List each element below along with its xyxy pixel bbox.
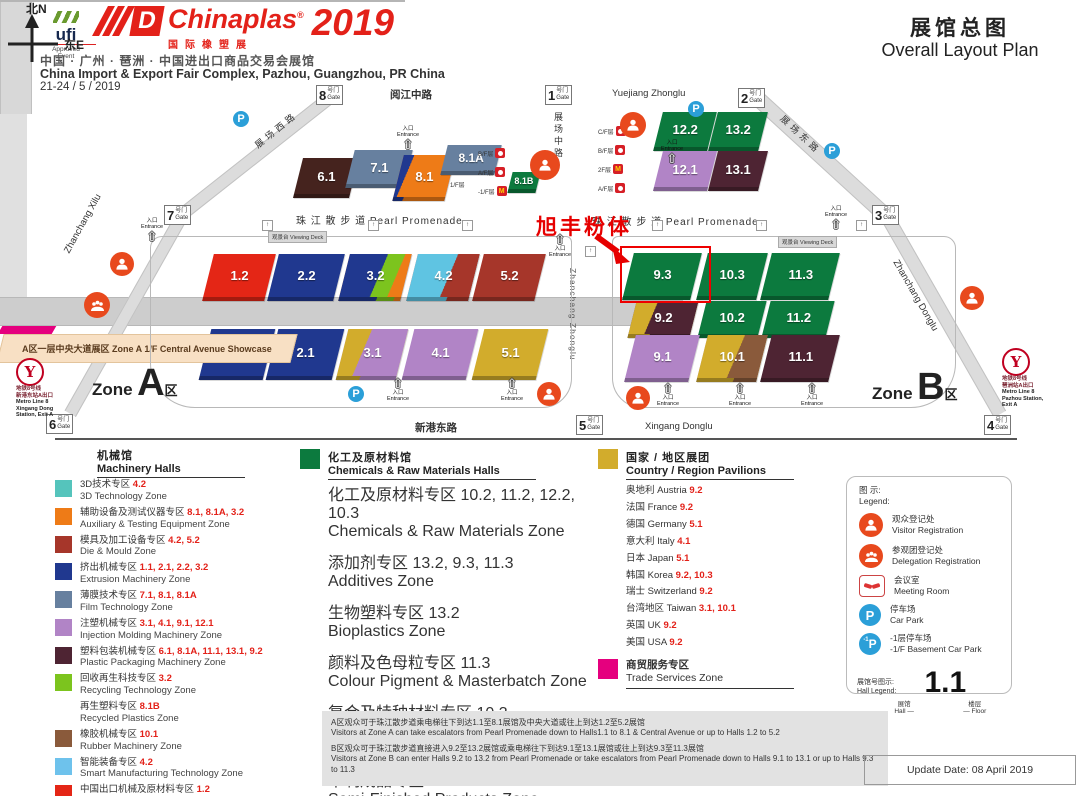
country-cn: 奥地利	[626, 485, 655, 496]
pavilion-row: 台湾地区 Taiwan 3.1, 10.1	[626, 601, 816, 618]
entrance-marker: 入口Entrance⇧	[650, 140, 694, 164]
zone-name-en: Semi-Finished Products Zone	[328, 791, 593, 796]
zone-a-label: Zone A区	[92, 362, 178, 405]
metro-icon: Y	[1002, 348, 1030, 376]
floor-label: A/F层	[598, 184, 613, 193]
note-a-en: Visitors at Zone A can take escalators f…	[331, 728, 879, 738]
entrance-arrow-icon: ⇧	[814, 219, 858, 231]
country-cn: 意大利	[626, 536, 655, 547]
zone-halls: 4.2, 5.2	[168, 535, 200, 546]
car-park-icon: P	[233, 111, 249, 127]
entrance-marker: ⇧入口Entrance	[790, 383, 834, 407]
basement-car-park-icon: -1P	[859, 633, 881, 655]
gate-number: 2	[741, 92, 748, 105]
zone-halls: 3.1, 4.1, 9.1, 12.1	[140, 618, 214, 629]
zone-name-en: Chemicals & Raw Materials Zone	[328, 523, 593, 541]
entrance-marker: ⇧入口Entrance	[490, 378, 534, 402]
country-en: Korea	[648, 570, 673, 581]
legend-panel-rows: 观众登记处Visitor Registration参观团登记处Delegatio…	[847, 513, 1011, 655]
zone-name-cn: 中国出口机械及原材料专区 1.2	[80, 784, 266, 796]
zone-color-swatch	[55, 619, 72, 636]
trade-services-swatch	[598, 659, 618, 679]
entrance-marker: 入口Entrance⇧	[386, 126, 430, 150]
hall-label: 8.1B	[515, 176, 534, 186]
country-halls: 9.2	[699, 586, 712, 597]
zone-name-cn: 生物塑料专区 13.2	[328, 599, 593, 623]
food-floor-right: A/F层	[598, 183, 627, 193]
zone-color-swatch	[55, 591, 72, 608]
entrance-label: 入口Entrance	[646, 395, 690, 408]
annotation-arrow-icon	[592, 232, 632, 266]
zone-b-letter: B	[917, 366, 944, 408]
escalator-icon: ↑	[462, 220, 473, 231]
zone-name-cn: 智能装备专区 4.2	[80, 757, 243, 769]
entrance-marker: 入口Entrance⇧	[130, 218, 174, 242]
country-cn: 英国	[626, 620, 645, 631]
promenade-label-left: 珠 江 散 步 道 Pearl Promenade	[296, 212, 463, 227]
mcdonalds-icon: M	[613, 164, 623, 174]
entrance-arrow-icon: ⇧	[650, 153, 694, 165]
floor-label: -1/F层	[478, 187, 495, 196]
zone-name-cn: 挤出机械专区 1.1, 2.1, 2.2, 3.2	[80, 562, 208, 574]
site-map: 阅江中路Yuejiang Zhonglu展场中路Zhanchang Zhongl…	[0, 0, 1080, 440]
metro-label: Station, Exit A	[16, 412, 88, 419]
zone-halls: 13.2, 9.3, 11.3	[412, 555, 513, 572]
car-park-icon: P	[348, 386, 364, 402]
entrance-label: 入口Entrance	[490, 390, 534, 403]
metro-label: Xingang Dong	[16, 406, 88, 413]
entrance-arrow-icon: ⇧	[376, 378, 420, 390]
entrance-label: 入口Entrance	[790, 395, 834, 408]
legend-row-en: Car Park	[890, 615, 924, 626]
visitor-registration-icon	[620, 112, 646, 138]
metro-label: 琶洲站A出口	[1002, 383, 1074, 390]
hall-legend-label: 展馆号图示: Hall Legend:	[857, 678, 896, 696]
zone-name-en: Recycled Plastics Zone	[80, 713, 179, 725]
chemicals-halls-title: 化工及原材料馆 Chemicals & Raw Materials Halls	[300, 449, 536, 480]
metro-label: 地铁8号线	[16, 386, 88, 393]
pavilion-row: 英国 UK 9.2	[626, 618, 816, 635]
visitor-registration-icon	[537, 382, 561, 406]
gate-suffix: 号门Gate	[175, 208, 188, 221]
gate-5: 5号门Gate	[576, 415, 603, 435]
zone-name-en: Die & Mould Zone	[80, 546, 200, 558]
overall-layout-plan-page: ufi ApprovedEvent D Chinaplas® 国际橡塑展 201…	[0, 0, 1080, 796]
zone-halls: 11.3	[460, 655, 490, 672]
country-cn: 德国	[626, 519, 645, 530]
hall-legend-hall-label: 展馆Hall —	[894, 698, 914, 715]
zone-name-en: Rubber Machinery Zone	[80, 741, 182, 753]
zone-name-cn: 辅助设备及测试仪器专区 8.1, 8.1A, 3.2	[80, 507, 244, 519]
zone-name-cn: 模具及加工设备专区 4.2, 5.2	[80, 535, 200, 547]
gate-suffix: 号门Gate	[556, 88, 569, 101]
machinery-legend-item: 挤出机械专区 1.1, 2.1, 2.2, 3.2Extrusion Machi…	[55, 562, 305, 586]
gate-suffix: 号门Gate	[57, 417, 70, 430]
zone-cn: 区	[165, 383, 178, 398]
compass-east-label: 东E	[64, 36, 84, 53]
entrance-marker: ⇧入口Entrance	[718, 383, 762, 407]
food-floor-left: A/F层	[478, 167, 507, 177]
entrance-arrow-icon: ⇧	[646, 383, 690, 395]
floor-1f-label: 1/F层	[450, 180, 465, 189]
zone-halls: 8.1B	[140, 701, 160, 712]
gate-3: 3号门Gate	[872, 205, 899, 225]
zone-color-swatch	[55, 536, 72, 553]
entrance-arrow-icon: ⇧	[718, 383, 762, 395]
hall-label: 12.2	[673, 122, 698, 137]
visitor-registration-icon	[530, 150, 560, 180]
chemicals-legend-item: 添加剂专区 13.2, 9.3, 11.3Additives Zone	[328, 549, 593, 591]
gate-number: 5	[579, 419, 586, 432]
delegation-registration-icon	[84, 292, 110, 318]
country-halls: 9.2	[689, 485, 702, 496]
legend-row-cn: 会议室	[894, 575, 949, 586]
viewing-deck-left: 观景台 Viewing Deck	[268, 231, 327, 243]
gate-4: 4号门Gate	[984, 415, 1011, 435]
machinery-legend-list: 3D技术专区 4.23D Technology Zone辅助设备及测试仪器专区 …	[55, 479, 305, 796]
zone-name-en: Auxiliary & Testing Equipment Zone	[80, 519, 244, 531]
escalator-icon: ↑	[756, 220, 767, 231]
compass-icon	[0, 14, 70, 64]
zone-color-swatch	[55, 758, 72, 775]
gate-suffix: 号门Gate	[587, 418, 600, 431]
machinery-legend-item: 再生塑料专区 8.1BRecycled Plastics Zone	[55, 701, 305, 725]
trade-strip	[0, 326, 56, 334]
metro-left: Y地铁8号线新港东站A出口Metro Line 8Xingang DongSta…	[16, 358, 88, 419]
legend-row-en: Delegation Registration	[892, 556, 980, 567]
road-label-xingang-cn: 新港东路	[415, 420, 457, 435]
visitor-registration-icon	[859, 513, 883, 537]
entrance-marker: 入口Entrance⇧	[814, 206, 858, 230]
metro-label: Metro Line 8	[16, 399, 88, 406]
hall-legend: 展馆号图示: Hall Legend: 1.1 展馆Hall — 楼层— Flo…	[857, 668, 1011, 715]
machinery-legend-item: 塑料包装机械专区 6.1, 8.1A, 11.1, 13.1, 9.2Plast…	[55, 646, 305, 670]
pavilion-row: 韩国 Korea 9.2, 10.3	[626, 568, 816, 585]
chemicals-legend-item: 颜料及色母粒专区 11.3Colour Pigment & Masterbatc…	[328, 649, 593, 691]
zone-color-swatch	[55, 508, 72, 525]
country-en: USA	[648, 637, 667, 648]
pavilion-row: 奥地利 Austria 9.2	[626, 483, 816, 500]
country-cn: 韩国	[626, 570, 645, 581]
country-cn: 法国	[626, 502, 645, 513]
viewing-deck-right: 观景台 Viewing Deck	[778, 236, 837, 248]
legend-row-cn: 参观团登记处	[892, 545, 980, 556]
machinery-legend-item: 3D技术专区 4.23D Technology Zone	[55, 479, 305, 503]
zone-name-en: Recycling Technology Zone	[80, 685, 196, 697]
zone-cn: 区	[945, 387, 958, 402]
hall-label: 13.2	[726, 122, 751, 137]
floor-label: B/F层	[598, 146, 613, 155]
gate-8: 8号门Gate	[316, 85, 343, 105]
floor-label: B/F层	[478, 149, 493, 158]
zone-name-en: Smart Manufacturing Technology Zone	[80, 768, 243, 780]
note-b-cn: B区观众可于珠江散步道直接进入9.2至13.2展馆或乘电梯往下到达9.1至13.…	[331, 744, 879, 754]
gate-suffix: 号门Gate	[327, 88, 340, 101]
zone-name-en: Injection Molding Machinery Zone	[80, 630, 222, 642]
entrance-label: 入口Entrance	[718, 395, 762, 408]
country-en: Austria	[657, 485, 687, 496]
zone-halls: 10.1	[140, 729, 159, 740]
escalator-icon: ↑	[652, 220, 663, 231]
pavilion-row: 德国 Germany 5.1	[626, 517, 816, 534]
legend-panel-row: 会议室Meeting Room	[859, 575, 1011, 597]
food-floor-left: -1/F层M	[478, 186, 509, 196]
hall-label: 13.1	[726, 162, 751, 177]
pavilion-row: 瑞士 Switzerland 9.2	[626, 584, 816, 601]
zone-name-en: Film Technology Zone	[80, 602, 197, 614]
country-halls: 9.2	[680, 502, 693, 513]
country-halls: 9.2	[669, 637, 682, 648]
country-en: Italy	[657, 536, 674, 547]
legend-panel-row: P停车场Car Park	[859, 604, 1011, 626]
country-en: UK	[648, 620, 661, 631]
legend-row-en: Visitor Registration	[892, 525, 963, 536]
metro-label: Pazhou Station,	[1002, 396, 1074, 403]
machinery-legend-item: 辅助设备及测试仪器专区 8.1, 8.1A, 3.2Auxiliary & Te…	[55, 507, 305, 531]
hall-legend-sample: 1.1 展馆Hall — 楼层— Floor	[904, 668, 986, 715]
gate-number: 6	[49, 418, 56, 431]
zone-name-cn: 3D技术专区 4.2	[80, 479, 167, 491]
zone-name-cn: 注塑机械专区 3.1, 4.1, 9.1, 12.1	[80, 618, 222, 630]
road-label-yuejiang-en: Yuejiang Zhonglu	[612, 88, 685, 99]
machinery-legend-item: 注塑机械专区 3.1, 4.1, 9.1, 12.1Injection Mold…	[55, 618, 305, 642]
zone-halls: 13.2	[428, 605, 459, 622]
meeting-room-icon	[859, 575, 885, 597]
hall-legend-floor-label: 楼层— Floor	[963, 698, 986, 715]
metro-label: 新港东站A出口	[16, 393, 88, 400]
machinery-legend-item: 薄膜技术专区 7.1, 8.1, 8.1AFilm Technology Zon…	[55, 590, 305, 614]
delegation-registration-icon	[859, 544, 883, 568]
entrance-label: 入口Entrance	[376, 390, 420, 403]
zone-color-swatch	[55, 563, 72, 580]
gate-number: 1	[548, 89, 555, 102]
hall-13-1: 13.1	[708, 151, 768, 191]
legend-panel: 图 示: Legend: 观众登记处Visitor Registration参观…	[846, 476, 1012, 694]
zone-a-letter: A	[137, 362, 164, 404]
zone-name-cn: 薄膜技术专区 7.1, 8.1, 8.1A	[80, 590, 197, 602]
metro-right: Y地铁8号线琶洲站A出口Metro Line 8Pazhou Station,E…	[1002, 348, 1074, 409]
restaurant-icon	[615, 183, 625, 193]
gate-number: 4	[987, 419, 994, 432]
escalator-icon: ↑	[262, 220, 273, 231]
zone-color-swatch	[55, 730, 72, 747]
entrance-label: 入口Entrance	[538, 246, 582, 259]
country-cn: 美国	[626, 637, 645, 648]
entrance-arrow-icon: ⇧	[130, 231, 174, 243]
chemicals-legend-item: 生物塑料专区 13.2Bioplastics Zone	[328, 599, 593, 641]
gate-2: 2号门Gate	[738, 88, 765, 108]
legend-panel-row: 观众登记处Visitor Registration	[859, 513, 1011, 537]
restaurant-icon	[495, 167, 505, 177]
country-en: Germany	[648, 519, 687, 530]
pavilions-swatch	[598, 449, 618, 469]
pavilions-title: 国家 / 地区展团 Country / Region Pavilions	[598, 449, 794, 480]
gate-suffix: 号门Gate	[749, 91, 762, 104]
visitor-registration-icon	[960, 286, 984, 310]
zone-color-swatch	[55, 480, 72, 497]
zone-color-swatch	[55, 785, 72, 796]
zone-name-en: 3D Technology Zone	[80, 491, 167, 503]
zone-name-cn: 颜料及色母粒专区 11.3	[328, 649, 593, 673]
machinery-legend-item: 回收再生科技专区 3.2Recycling Technology Zone	[55, 673, 305, 697]
zone-name-en: Colour Pigment & Masterbatch Zone	[328, 673, 593, 691]
no-swatch	[55, 702, 72, 719]
zone-name-cn: 回收再生科技专区 3.2	[80, 673, 196, 685]
zone-halls: 8.1, 8.1A, 3.2	[187, 507, 244, 518]
entrance-marker: ⇧入口Entrance	[376, 378, 420, 402]
gate-number: 8	[319, 89, 326, 102]
legend-row-cn: 观众登记处	[892, 514, 963, 525]
legend-panel-title: 图 示: Legend:	[859, 485, 1011, 506]
machinery-legend-item: 橡胶机械专区 10.1Rubber Machinery Zone	[55, 729, 305, 753]
zone-halls: 4.2	[133, 479, 146, 490]
mcdonalds-icon: M	[497, 186, 507, 196]
visitor-registration-icon	[626, 386, 650, 410]
metro-icon: Y	[16, 358, 44, 386]
legend-row-en: -1/F Basement Car Park	[890, 644, 982, 655]
floor-label: A/F层	[478, 168, 493, 177]
chemicals-legend-item: 化工及原材料专区 10.2, 11.2, 12.2, 10.3Chemicals…	[328, 481, 593, 541]
road-west-upper	[179, 92, 334, 218]
escalator-icon: ↑	[368, 220, 379, 231]
zone-word: Zone	[92, 380, 133, 399]
food-floor-right: B/F层	[598, 145, 627, 155]
legend-panel-row: 参观团登记处Delegation Registration	[859, 544, 1011, 568]
country-halls: 5.1	[676, 553, 689, 564]
machinery-legend-item: 中国出口机械及原材料专区 1.2Chinese Export Machinery…	[55, 784, 305, 796]
road-label-zhanchang-xilu-en: Zhanchang Xilu	[62, 192, 104, 255]
zone-name-en: Extrusion Machinery Zone	[80, 574, 208, 586]
hall-label: 8.1	[415, 169, 433, 184]
zone-halls: 7.1, 8.1, 8.1A	[140, 590, 197, 601]
country-en: France	[648, 502, 678, 513]
machinery-legend-item: 智能装备专区 4.2Smart Manufacturing Technology…	[55, 757, 305, 781]
zone-halls: 1.2	[197, 784, 210, 795]
zone-name-en: Additives Zone	[328, 573, 593, 591]
pavilion-row: 日本 Japan 5.1	[626, 551, 816, 568]
car-park-icon: P	[688, 101, 704, 117]
country-halls: 4.1	[677, 536, 690, 547]
road-yuejiang	[0, 0, 405, 2]
metro-label: Exit A	[1002, 402, 1074, 409]
pavilion-row: 美国 USA 9.2	[626, 635, 816, 652]
pavilion-row: 法国 France 9.2	[626, 500, 816, 517]
zone-b-label: Zone B区	[872, 366, 958, 409]
zone-name-cn: 添加剂专区 13.2, 9.3, 11.3	[328, 549, 593, 573]
zone-name-cn: 塑料包装机械专区 6.1, 8.1A, 11.1, 13.1, 9.2	[80, 646, 263, 658]
country-en: Taiwan	[667, 603, 697, 614]
trade-services-entry: 商贸服务专区 Trade Services Zone	[598, 657, 794, 689]
entrance-marker: ⇧入口Entrance	[646, 383, 690, 407]
zone-halls: 3.2	[159, 673, 172, 684]
zone-name-en: Bioplastics Zone	[328, 623, 593, 641]
note-a-cn: A区观众可于珠江散步道乘电梯往下到达1.1至8.1展馆及中央大道或往上到达1.2…	[331, 718, 879, 728]
road-label-xingang-en: Xingang Donglu	[645, 421, 713, 432]
road-label-yuejiang-cn: 阅江中路	[390, 87, 432, 102]
country-cn: 台湾地区	[626, 603, 664, 614]
metro-label: 地铁8号线	[1002, 376, 1074, 383]
entrance-arrow-icon: ⇧	[490, 378, 534, 390]
road-zhanchang-zhonglu-bottom	[0, 114, 27, 297]
country-cn: 日本	[626, 553, 645, 564]
car-park-icon: P	[824, 143, 840, 159]
legend-panel-row: -1P-1层停车场-1/F Basement Car Park	[859, 633, 1011, 655]
gate-suffix: 号门Gate	[995, 418, 1008, 431]
zone-color-swatch	[55, 647, 72, 664]
zone-color-swatch	[55, 674, 72, 691]
pavilions-list: 奥地利 Austria 9.2法国 France 9.2德国 Germany 5…	[626, 483, 816, 652]
legend-row-cn: -1层停车场	[890, 633, 982, 644]
gate-suffix: 号门Gate	[883, 208, 896, 221]
entrance-arrow-icon: ⇧	[386, 139, 430, 151]
food-floor-right: 2F层M	[598, 164, 625, 174]
pavilion-row: 意大利 Italy 4.1	[626, 534, 816, 551]
country-halls: 9.2, 10.3	[676, 570, 713, 581]
machinery-halls-title: 机械馆 Machinery Halls	[97, 447, 245, 478]
country-en: Japan	[648, 553, 674, 564]
hall-label: 6.1	[317, 169, 335, 184]
entrance-arrow-icon: ⇧	[790, 383, 834, 395]
hall-label: 7.1	[370, 160, 388, 175]
visitor-registration-icon	[110, 252, 134, 276]
country-cn: 瑞士	[626, 586, 645, 597]
annotation-highlight-box	[620, 246, 711, 303]
restaurant-icon	[615, 145, 625, 155]
visitor-notes: A区观众可于珠江散步道乘电梯往下到达1.1至8.1展馆及中央大道或往上到达1.2…	[322, 711, 888, 786]
zone-name-cn: 再生塑料专区 8.1B	[80, 701, 179, 713]
zone-halls: 6.1, 8.1A, 11.1, 13.1, 9.2	[159, 646, 263, 657]
floor-label: C/F层	[598, 127, 614, 136]
hall-13-2: 13.2	[708, 112, 768, 151]
country-halls: 3.1, 10.1	[699, 603, 736, 614]
car-park-icon: P	[859, 604, 881, 626]
legend-row-cn: 停车场	[890, 604, 924, 615]
gate-number: 3	[875, 209, 882, 222]
restaurant-icon	[495, 148, 505, 158]
country-halls: 5.1	[689, 519, 702, 530]
map-legend-divider	[55, 438, 1017, 440]
note-b-en: Visitors at Zone B can enter Halls 9.2 t…	[331, 754, 879, 775]
update-date: Update Date: 08 April 2019	[864, 755, 1076, 785]
zone-name-cn: 橡胶机械专区 10.1	[80, 729, 182, 741]
country-halls: 9.2	[664, 620, 677, 631]
zone-word: Zone	[872, 384, 913, 403]
zone-name-cn: 化工及原材料专区 10.2, 11.2, 12.2, 10.3	[328, 481, 593, 523]
gate-1: 1号门Gate	[545, 85, 572, 105]
zone-halls: 4.2	[140, 757, 153, 768]
chemicals-swatch	[300, 449, 320, 469]
country-en: Switzerland	[648, 586, 697, 597]
metro-label: Metro Line 8	[1002, 389, 1074, 396]
food-floor-left: B/F层	[478, 148, 507, 158]
zone-name-en: Plastic Packaging Machinery Zone	[80, 657, 263, 669]
zone-halls: 1.1, 2.1, 2.2, 3.2	[140, 562, 209, 573]
floor-label: 2F层	[598, 165, 611, 174]
legend-row-en: Meeting Room	[894, 586, 949, 597]
machinery-legend-item: 模具及加工设备专区 4.2, 5.2Die & Mould Zone	[55, 535, 305, 559]
